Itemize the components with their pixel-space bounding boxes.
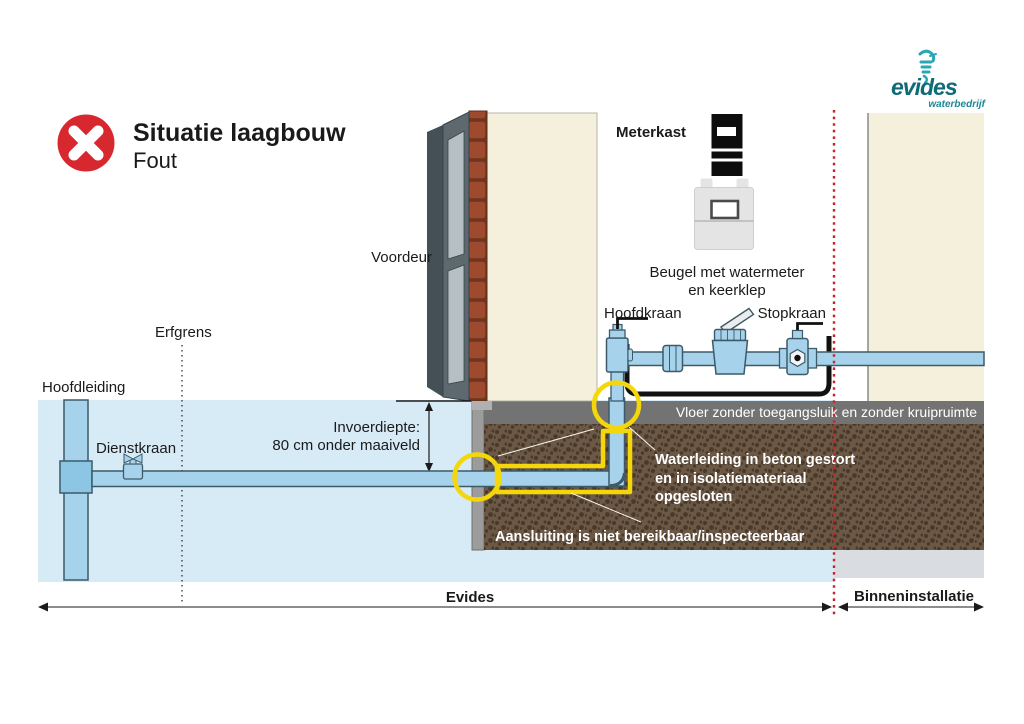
label-invoerdiepte-2: 80 cm onder maaiveld <box>272 437 420 454</box>
stop-valve <box>780 324 824 375</box>
label-erfgrens: Erfgrens <box>155 324 212 341</box>
label-dienstkraan: Dienstkraan <box>96 440 176 457</box>
zone-arrow-evides <box>38 603 832 612</box>
main-pipe-junction <box>60 461 92 493</box>
page-title: Situatie laagbouw <box>133 119 346 147</box>
label-vloer: Vloer zonder toegangsluik en zonder krui… <box>676 404 977 420</box>
door-glass-top <box>448 131 464 259</box>
label-beugel-1: Beugel met watermeter <box>649 264 804 281</box>
brand-tagline: waterbedrijf <box>928 99 986 110</box>
label-hoofdleiding: Hoofdleiding <box>42 379 125 396</box>
door-sill <box>472 401 492 410</box>
label-beugel-2: en keerklep <box>688 282 766 299</box>
label-waterleiding-3: opgesloten <box>655 489 732 505</box>
label-zone-binneninstallatie: Binneninstallatie <box>854 588 974 605</box>
label-hoofdkraan: Hoofdkraan <box>604 305 682 322</box>
label-waterleiding-1: Waterleiding in beton gestort <box>655 452 855 468</box>
meter-cabinet <box>712 114 743 176</box>
label-waterleiding-2: en in isolatiemateriaal <box>655 471 807 487</box>
door-glass-bottom <box>448 265 464 384</box>
error-badge <box>58 115 115 172</box>
label-voordeur: Voordeur <box>371 249 432 266</box>
front-door <box>427 112 469 401</box>
label-meterkast: Meterkast <box>616 124 686 141</box>
label-invoerdiepte-1: Invoerdiepte: <box>333 419 420 436</box>
stop-valve-handle <box>798 324 824 331</box>
page-subtitle: Fout <box>133 148 177 173</box>
underground-pipe <box>92 471 618 487</box>
infographic-situatie-laagbouw-fout: Vloer zonder toegangsluik en zonder krui… <box>0 0 1024 724</box>
label-stopkraan: Stopkraan <box>758 305 826 322</box>
meter-display <box>712 201 739 218</box>
ground-band-right <box>834 550 984 578</box>
brand-name: evides <box>891 74 957 100</box>
label-zone-evides: Evides <box>446 589 494 606</box>
riser-pipe <box>609 398 625 486</box>
wall-left <box>486 113 597 401</box>
brick-wall <box>469 111 487 401</box>
diagram: Vloer zonder toegangsluik en zonder krui… <box>0 0 1024 724</box>
evides-logo: evides waterbedrijf <box>891 51 987 110</box>
meter-unit <box>695 179 754 250</box>
label-aansluiting: Aansluiting is niet bereikbaar/inspectee… <box>495 529 805 545</box>
pipe-coupling <box>663 346 683 372</box>
